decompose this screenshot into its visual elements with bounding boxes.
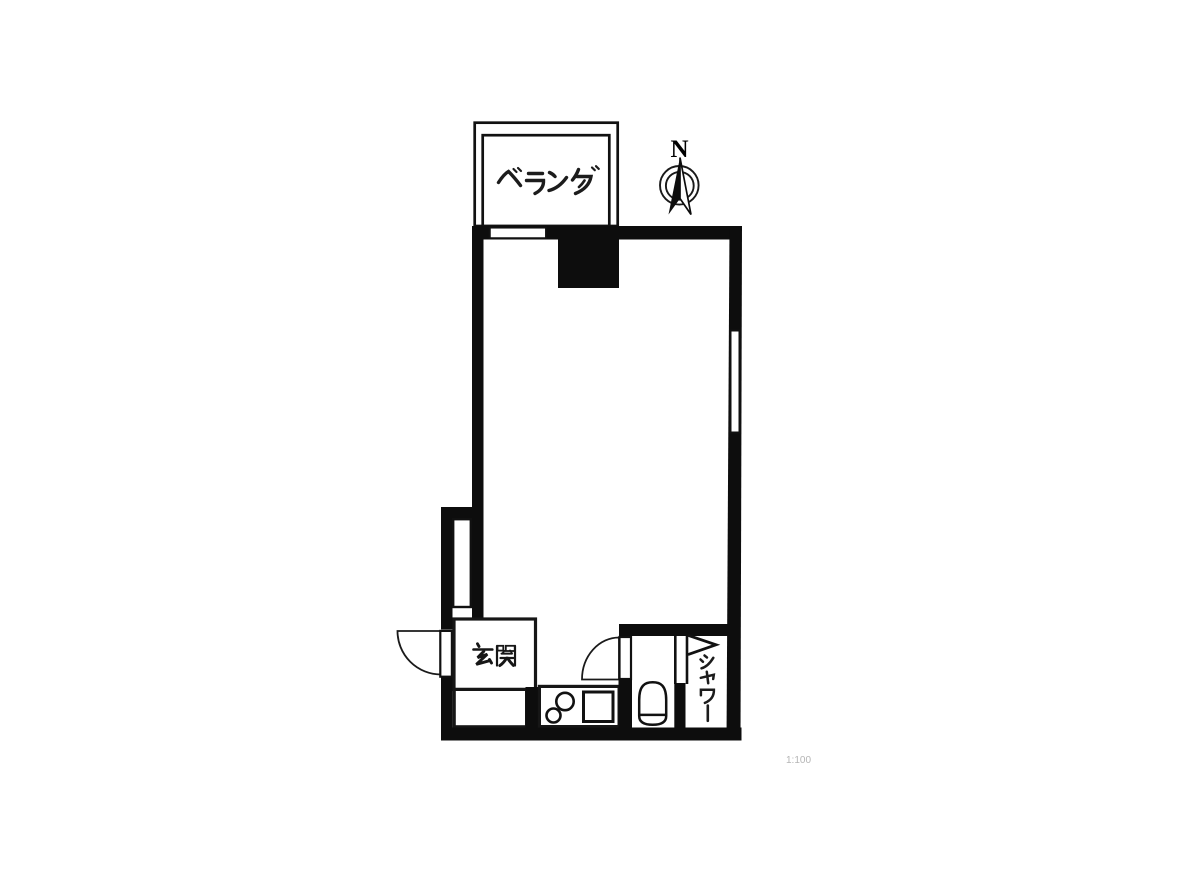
svg-text:1:100: 1:100 bbox=[786, 755, 811, 766]
